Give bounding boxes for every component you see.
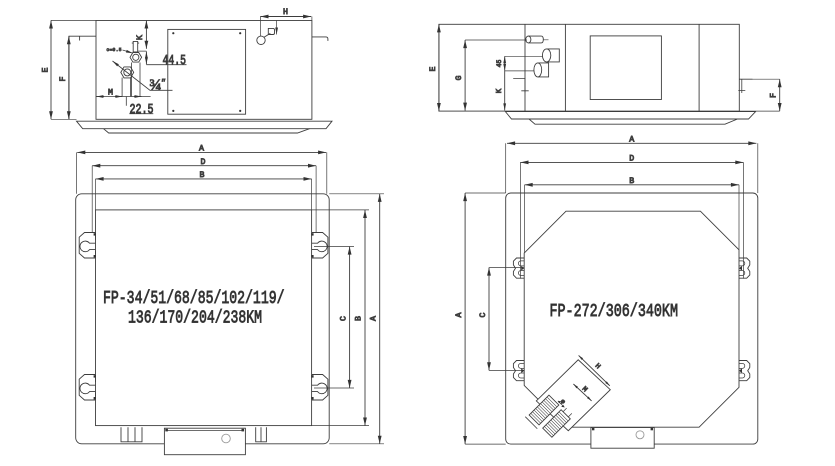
- svg-text:G: G: [455, 75, 464, 80]
- svg-text:c=9.5: c=9.5: [107, 47, 122, 53]
- svg-text:F: F: [770, 93, 779, 98]
- svg-text:C: C: [479, 312, 488, 317]
- svg-text:45: 45: [496, 60, 503, 68]
- svg-text:F: F: [59, 76, 68, 81]
- svg-text:E: E: [429, 66, 438, 71]
- svg-text:H: H: [593, 362, 602, 371]
- svg-text:K: K: [496, 88, 504, 93]
- svg-text:A: A: [369, 316, 378, 321]
- svg-text:A: A: [199, 145, 204, 154]
- svg-text:C: C: [339, 316, 348, 321]
- svg-text:D: D: [629, 155, 634, 164]
- svg-text:B: B: [355, 316, 364, 321]
- svg-text:M: M: [108, 89, 113, 98]
- svg-text:¾″: ¾″: [150, 77, 166, 94]
- svg-text:44.5: 44.5: [163, 54, 187, 69]
- svg-text:FP-272/306/340KM: FP-272/306/340KM: [550, 301, 679, 322]
- svg-text:A: A: [629, 136, 634, 145]
- svg-text:136/170/204/238KM: 136/170/204/238KM: [128, 308, 262, 329]
- svg-text:D: D: [201, 158, 206, 167]
- svg-text:B: B: [629, 177, 634, 186]
- svg-text:A: A: [455, 312, 464, 317]
- svg-text:FP-34/51/68/85/102/119/: FP-34/51/68/85/102/119/: [103, 288, 285, 309]
- svg-text:H: H: [283, 8, 288, 17]
- svg-text:K: K: [135, 34, 145, 40]
- svg-text:22.5: 22.5: [130, 103, 154, 118]
- svg-text:E: E: [42, 67, 51, 72]
- svg-text:B: B: [200, 171, 205, 180]
